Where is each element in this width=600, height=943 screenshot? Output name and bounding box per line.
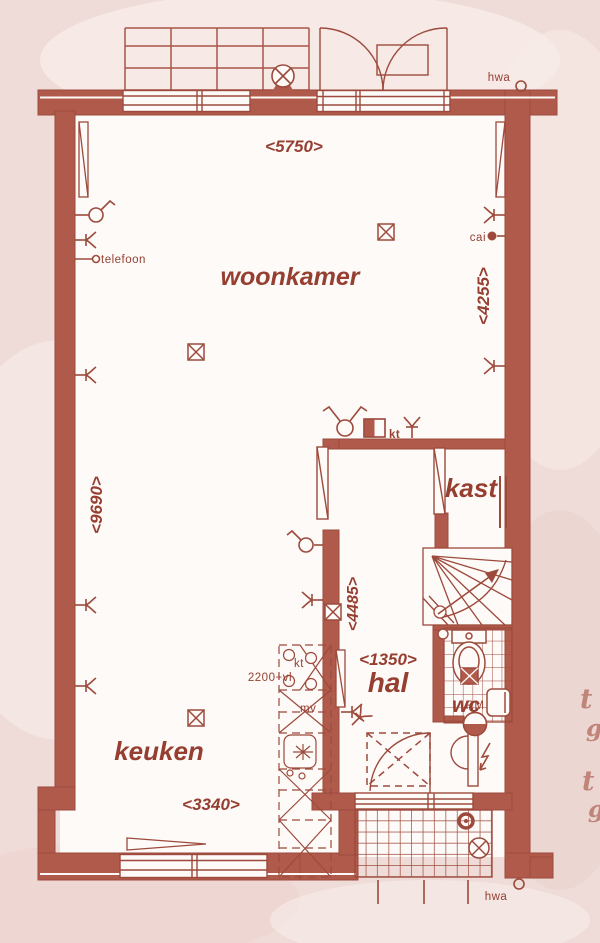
toilet-roll-icon — [438, 629, 448, 639]
dim-hall-v: <4485> — [345, 577, 362, 631]
room-label-hall: hal — [368, 667, 410, 698]
watermark-letter: g — [586, 715, 600, 742]
floor-plan-drawing: woonkamer keuken hal kast wc <5750> <425… — [0, 0, 600, 943]
radiator — [79, 122, 88, 197]
front-door-opening — [355, 793, 473, 809]
outdoor-light-icon — [272, 65, 294, 92]
staircase — [423, 548, 512, 625]
counter-note: 2200+vl — [248, 672, 292, 684]
toilet — [452, 630, 486, 684]
vent-label: mv — [300, 703, 316, 715]
dim-kitchen: <3340> — [182, 795, 240, 814]
room-label-living: woonkamer — [221, 263, 361, 291]
dim-right: <4255> — [474, 267, 493, 325]
radiator — [336, 650, 345, 707]
ceiling-light-icon — [188, 710, 204, 726]
gully-icon — [469, 838, 489, 858]
thermostat-icon — [364, 419, 385, 437]
watermark-letter: g — [588, 796, 600, 823]
thermostat-label: kt — [389, 429, 400, 441]
cooker-label: kt — [294, 658, 304, 670]
hwa-label-top: hwa — [488, 72, 511, 84]
radiator — [496, 122, 505, 197]
cai-label: cai — [470, 232, 486, 244]
watermark-letter: t — [580, 684, 593, 715]
dim-top: <5750> — [265, 137, 323, 156]
living-room-window — [123, 91, 250, 112]
hand-basin — [487, 689, 510, 716]
room-label-kitchen: keuken — [114, 736, 204, 766]
hall-door — [317, 447, 328, 519]
ceiling-light-icon — [378, 224, 394, 240]
room-label-closet: kast — [445, 473, 498, 503]
dim-left: <9690> — [87, 476, 106, 534]
kitchen-window — [120, 855, 267, 878]
ceiling-light-icon — [188, 344, 204, 360]
watermark-letter: t — [582, 766, 595, 797]
floor-plan-page: woonkamer keuken hal kast wc <5750> <425… — [0, 0, 600, 943]
smoke-detector-label: RM — [466, 700, 485, 712]
dim-hall-h: <1350> — [359, 650, 417, 669]
ceiling-light-icon — [325, 604, 341, 620]
closet-door — [434, 448, 445, 514]
hwa-label-bottom: hwa — [485, 891, 508, 903]
phone-label: telefoon — [101, 254, 146, 266]
